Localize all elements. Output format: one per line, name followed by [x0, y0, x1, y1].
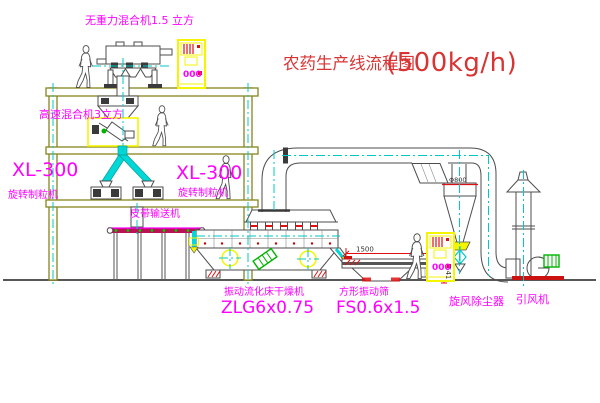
label-dryer-model: ZLG6x0.75	[221, 298, 314, 318]
label-high-speed-mixer: 高速混合机3立方	[39, 107, 123, 121]
label-belt-conveyor: 皮带输送机	[130, 207, 180, 220]
label-granulator-left-name: 旋转制粒机	[8, 188, 58, 201]
process-flow-drawing: 农药生产线流程图 (500kg/h) 无重力混合机1.5 立方 高速混合机3立方…	[0, 0, 600, 403]
fluid-bed-dryer	[190, 210, 351, 278]
cabinet-2-display: 000	[432, 263, 451, 273]
granulator-left	[91, 187, 121, 199]
label-granulator-mid-name: 旋转制粒机	[178, 186, 228, 199]
label-granulator-mid-model: XL-300	[176, 162, 242, 184]
belt-conveyor	[107, 228, 205, 280]
cabinet-1-display: 000	[183, 70, 202, 80]
dim-sieve-length: 1500	[356, 246, 374, 254]
dim-cyclone-diameter: Φ800	[449, 176, 467, 184]
granulator-right	[133, 187, 163, 199]
label-granulator-left-model: XL-300	[12, 159, 78, 181]
induced-draft-fan	[506, 255, 564, 280]
person-figure-4	[407, 234, 424, 279]
high-speed-mixer	[88, 96, 138, 146]
label-top-mixer: 无重力混合机1.5 立方	[85, 13, 194, 27]
label-sieve-name: 方形振动筛	[339, 285, 389, 298]
label-sieve-model: FS0.6x1.5	[336, 298, 420, 318]
control-cabinet-1	[178, 40, 205, 88]
label-cyclone: 旋风除尘器	[449, 294, 504, 308]
drawing-svg: 农药生产线流程图 (500kg/h) 无重力混合机1.5 立方 高速混合机3立方…	[0, 0, 600, 403]
title-capacity: (500kg/h)	[386, 48, 517, 78]
person-figure-2	[153, 106, 168, 146]
label-dryer-name: 振动流化床干燥机	[224, 285, 304, 298]
person-figure-1	[76, 46, 92, 88]
label-fan: 引风机	[516, 292, 549, 306]
